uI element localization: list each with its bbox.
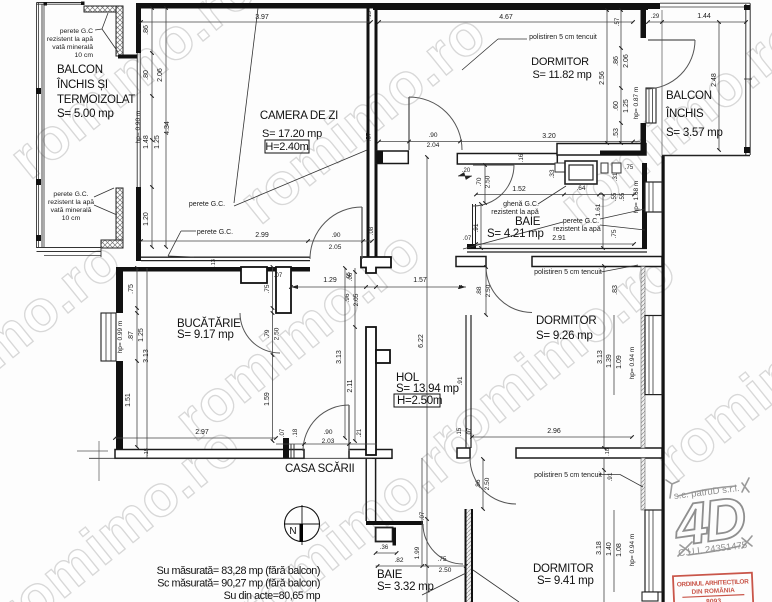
svg-text:rezistent la apă: rezistent la apă xyxy=(491,209,539,216)
svg-text:1.25: 1.25 xyxy=(623,99,630,113)
svg-text:rezistent la apă: rezistent la apă xyxy=(47,36,93,43)
svg-text:H=2.50m: H=2.50m xyxy=(397,395,442,407)
svg-text:.90: .90 xyxy=(331,232,340,239)
svg-text:BAIE: BAIE xyxy=(515,216,541,228)
svg-text:hp= 0.90 m: hp= 0.90 m xyxy=(135,111,142,144)
svg-text:1.51: 1.51 xyxy=(125,393,132,407)
svg-text:TERMOIZOLAT: TERMOIZOLAT xyxy=(57,94,135,106)
svg-text:Su măsurată= 83,28 mp (fără ba: Su măsurată= 83,28 mp (fără balcon) xyxy=(157,565,320,577)
svg-text:CAMERA DE ZI: CAMERA DE ZI xyxy=(260,110,338,122)
svg-text:4.67: 4.67 xyxy=(499,14,513,21)
svg-text:hp= 1.68 m: hp= 1.68 m xyxy=(633,181,640,214)
svg-text:.33: .33 xyxy=(549,169,556,178)
svg-text:3.13: 3.13 xyxy=(143,349,150,363)
svg-text:2.50: 2.50 xyxy=(439,567,452,574)
svg-text:8093: 8093 xyxy=(706,598,722,602)
svg-text:perete G.C.: perete G.C. xyxy=(197,229,233,236)
svg-text:.57: .57 xyxy=(367,132,373,141)
svg-text:S= 4.21 mp: S= 4.21 mp xyxy=(487,228,544,240)
svg-text:S= 3.32 mp: S= 3.32 mp xyxy=(377,581,434,593)
svg-text:S= 3.57 mp: S= 3.57 mp xyxy=(666,127,723,139)
svg-text:2.99: 2.99 xyxy=(255,232,269,239)
svg-text:S= 9.17 mp: S= 9.17 mp xyxy=(177,329,234,341)
svg-text:.55: .55 xyxy=(620,192,626,201)
svg-text:.86: .86 xyxy=(613,56,620,66)
svg-text:1.25: 1.25 xyxy=(154,135,161,149)
svg-text:.82: .82 xyxy=(394,557,403,564)
svg-text:vată minerală: vată minerală xyxy=(52,44,93,51)
svg-text:6.22: 6.22 xyxy=(418,334,425,348)
svg-text:S= 11.82 mp: S= 11.82 mp xyxy=(532,69,591,81)
svg-text:.13: .13 xyxy=(211,259,217,267)
svg-text:1.29: 1.29 xyxy=(323,277,337,284)
svg-text:.90: .90 xyxy=(323,429,332,436)
svg-text:vată minerală: vată minerală xyxy=(51,207,92,214)
svg-text:3.20: 3.20 xyxy=(542,133,556,140)
svg-text:.75: .75 xyxy=(128,284,135,294)
svg-text:1.20: 1.20 xyxy=(143,212,150,226)
svg-text:S= 9.26 mp: S= 9.26 mp xyxy=(536,330,593,342)
svg-text:2.05: 2.05 xyxy=(329,244,342,251)
svg-text:H=2.40m: H=2.40m xyxy=(265,141,308,153)
svg-text:2.50: 2.50 xyxy=(485,284,492,297)
svg-text:10 cm: 10 cm xyxy=(62,215,81,222)
svg-text:1.99: 1.99 xyxy=(414,546,421,559)
svg-text:.18: .18 xyxy=(293,428,299,437)
svg-text:2.04: 2.04 xyxy=(427,142,440,149)
svg-text:ÎNCHIS: ÎNCHIS xyxy=(665,107,704,120)
svg-text:.83: .83 xyxy=(612,285,619,295)
svg-text:1.52: 1.52 xyxy=(512,186,526,193)
svg-text:.60: .60 xyxy=(613,101,620,111)
svg-text:2.03: 2.03 xyxy=(322,438,335,445)
svg-text:.07: .07 xyxy=(420,511,426,520)
svg-text:.64: .64 xyxy=(576,185,585,192)
svg-text:3.13: 3.13 xyxy=(597,350,604,364)
svg-text:2.56: 2.56 xyxy=(599,71,606,85)
svg-text:.29: .29 xyxy=(651,14,660,20)
svg-text:2.91: 2.91 xyxy=(552,235,566,242)
svg-text:Su din acte=80,65 mp: Su din acte=80,65 mp xyxy=(224,590,321,602)
svg-text:DORMITOR: DORMITOR xyxy=(531,56,589,68)
svg-text:4.34: 4.34 xyxy=(164,121,171,135)
svg-text:2.48: 2.48 xyxy=(711,73,718,87)
svg-text:.07: .07 xyxy=(280,428,286,437)
svg-text:.57: .57 xyxy=(615,17,621,26)
svg-text:.86: .86 xyxy=(475,479,482,488)
svg-text:S= 9.41 mp: S= 9.41 mp xyxy=(537,575,594,587)
svg-text:1.40: 1.40 xyxy=(606,542,613,556)
svg-text:BALCON: BALCON xyxy=(666,90,712,102)
svg-text:.91: .91 xyxy=(473,223,480,232)
svg-text:hp= 0.99 m: hp= 0.99 m xyxy=(117,321,124,354)
svg-text:polistiren 5 cm tencuit: polistiren 5 cm tencuit xyxy=(534,472,602,479)
svg-text:2.06: 2.06 xyxy=(623,54,630,68)
svg-text:N: N xyxy=(289,526,296,537)
svg-text:BAIE: BAIE xyxy=(377,569,403,581)
svg-text:2.05: 2.05 xyxy=(353,293,360,306)
svg-text:perete G.C.: perete G.C. xyxy=(563,218,599,225)
svg-text:.15: .15 xyxy=(367,11,373,19)
svg-text:1.48: 1.48 xyxy=(143,135,150,149)
svg-text:.75: .75 xyxy=(625,165,634,171)
svg-text:.05: .05 xyxy=(346,272,352,280)
svg-text:.87: .87 xyxy=(128,331,135,341)
svg-text:perete G.C: perete G.C xyxy=(60,28,93,35)
svg-text:.31: .31 xyxy=(613,172,619,181)
svg-text:1.09: 1.09 xyxy=(616,355,623,369)
svg-text:BALCON: BALCON xyxy=(57,64,103,76)
svg-text:3.13: 3.13 xyxy=(336,350,343,364)
svg-text:rezistent la apă: rezistent la apă xyxy=(553,226,601,233)
svg-text:.55: .55 xyxy=(612,192,618,201)
svg-text:2.06: 2.06 xyxy=(157,68,164,82)
svg-text:.21: .21 xyxy=(357,428,363,437)
svg-text:1.44: 1.44 xyxy=(697,13,711,20)
svg-text:hp= 0.94 m: hp= 0.94 m xyxy=(629,534,636,567)
svg-text:10 cm: 10 cm xyxy=(74,52,93,59)
svg-text:.20: .20 xyxy=(462,168,471,174)
svg-text:1.25: 1.25 xyxy=(138,328,145,342)
svg-text:DORMITOR: DORMITOR xyxy=(533,563,593,575)
svg-text:.07: .07 xyxy=(274,273,283,279)
svg-text:.79: .79 xyxy=(264,329,271,338)
svg-text:1.08: 1.08 xyxy=(616,543,623,557)
svg-text:1.39: 1.39 xyxy=(606,354,613,368)
svg-text:polistiren 5 cm tencuit: polistiren 5 cm tencuit xyxy=(529,34,597,41)
svg-text:.15: .15 xyxy=(457,427,463,436)
svg-text:.53: .53 xyxy=(613,128,620,138)
svg-text:1.59: 1.59 xyxy=(264,392,271,406)
svg-text:Sc măsurată= 90,27 mp (fără ba: Sc măsurată= 90,27 mp (fără balcon) xyxy=(157,578,320,590)
svg-text:3.18: 3.18 xyxy=(596,541,603,555)
svg-text:.07: .07 xyxy=(467,427,473,436)
svg-text:.36: .36 xyxy=(380,545,389,551)
svg-text:hp= 0.94 m: hp= 0.94 m xyxy=(629,347,636,380)
svg-text:.91: .91 xyxy=(607,472,614,481)
svg-text:DORMITOR: DORMITOR xyxy=(536,315,596,327)
svg-text:.07: .07 xyxy=(463,236,472,242)
svg-text:.90: .90 xyxy=(428,132,437,139)
svg-text:2.11: 2.11 xyxy=(347,379,354,392)
svg-text:S= 5.00 mp: S= 5.00 mp xyxy=(57,108,114,120)
svg-text:polistiren 5 cm tencuit: polistiren 5 cm tencuit xyxy=(534,269,602,276)
svg-text:.80: .80 xyxy=(143,70,150,80)
svg-text:ghenă G.C.: ghenă G.C. xyxy=(503,201,539,208)
svg-text:hp= 0.87 m: hp= 0.87 m xyxy=(633,87,640,120)
svg-text:.86: .86 xyxy=(143,25,150,35)
svg-text:.16: .16 xyxy=(519,153,525,162)
svg-text:.75: .75 xyxy=(437,556,446,563)
svg-text:1.57: 1.57 xyxy=(413,277,427,284)
svg-text:.75: .75 xyxy=(611,229,618,238)
svg-text:.75: .75 xyxy=(264,284,271,293)
svg-text:rezistent la apă: rezistent la apă xyxy=(48,199,94,206)
svg-text:2.50: 2.50 xyxy=(274,327,281,340)
svg-text:perete G.C.: perete G.C. xyxy=(189,201,225,208)
svg-text:perete G.C.: perete G.C. xyxy=(53,191,88,198)
svg-text:.18: .18 xyxy=(605,448,611,456)
svg-text:2.50: 2.50 xyxy=(485,175,492,188)
svg-text:.70: .70 xyxy=(476,177,483,186)
svg-text:ÎNCHIS ȘI: ÎNCHIS ȘI xyxy=(56,78,108,91)
svg-text:1.61: 1.61 xyxy=(595,203,602,216)
svg-text:2.50: 2.50 xyxy=(484,477,491,490)
svg-text:S= 13.94 mp: S= 13.94 mp xyxy=(396,383,459,395)
svg-text:S= 17.20 mp: S= 17.20 mp xyxy=(262,128,322,140)
svg-text:2.97: 2.97 xyxy=(195,429,209,436)
svg-text:CASA SCĂRII: CASA SCĂRII xyxy=(285,462,355,475)
svg-text:.08: .08 xyxy=(369,226,375,235)
svg-text:.88: .88 xyxy=(476,286,483,295)
svg-text:2.96: 2.96 xyxy=(547,428,561,435)
